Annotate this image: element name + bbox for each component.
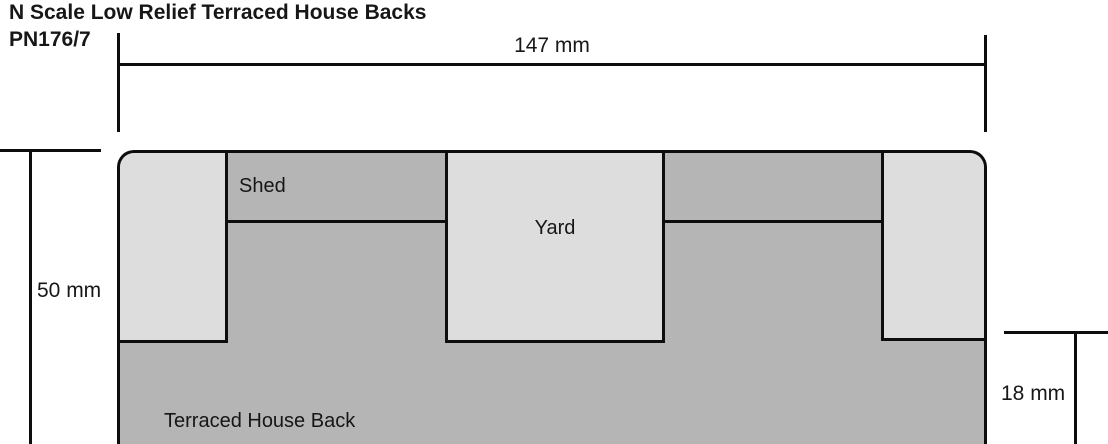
shed-region-label: Shed [239, 175, 286, 198]
depth-tick-line [1004, 331, 1108, 334]
height-dimension-label: 50 mm [37, 279, 101, 303]
shed-right-bottom-edge [662, 220, 884, 223]
shed-left-bottom-edge [225, 220, 448, 223]
depth-dimension-label: 18 mm [1001, 382, 1065, 406]
yard-region-label: Yard [445, 217, 665, 240]
product-code: PN176/7 [9, 28, 91, 52]
house-back-region-label: Terraced House Back [164, 410, 355, 433]
height-dimension-line [29, 149, 32, 444]
right-end-panel [881, 153, 984, 341]
width-extension-line-right [984, 35, 987, 132]
yard-region [445, 153, 665, 343]
width-dimension-line [117, 63, 987, 66]
depth-dimension-line [1074, 331, 1077, 444]
height-tick-line [0, 149, 101, 152]
width-dimension-label: 147 mm [452, 34, 652, 58]
left-end-panel [120, 153, 228, 343]
kit-outline-shape: Shed Yard Terraced House Back [117, 150, 987, 444]
diagram-canvas: N Scale Low Relief Terraced House Backs … [0, 0, 1108, 444]
width-extension-line-left [117, 33, 120, 132]
diagram-title: N Scale Low Relief Terraced House Backs [9, 1, 426, 25]
